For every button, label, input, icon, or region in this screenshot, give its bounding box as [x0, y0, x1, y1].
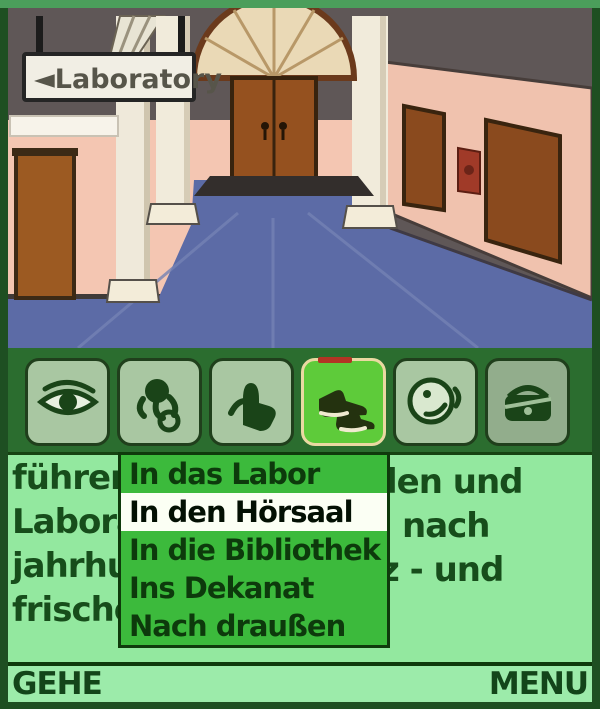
right-door-far[interactable]	[486, 120, 560, 262]
hallway-illustration: ◄Laboratory	[8, 8, 592, 348]
use-button[interactable]	[209, 358, 294, 446]
left-door[interactable]	[12, 148, 78, 298]
narration-fragment: len und	[386, 465, 523, 499]
verb-toolbar	[8, 348, 592, 452]
walking-shoes-icon	[311, 369, 377, 435]
door-mat	[194, 176, 374, 196]
grab-hand-icon	[127, 369, 193, 435]
inventory-bag-icon	[495, 369, 561, 435]
hold-hand-icon	[219, 369, 285, 435]
narration-fragment: nach	[402, 509, 490, 543]
wall-plate	[10, 116, 118, 136]
go-button[interactable]	[301, 358, 386, 446]
talking-face-icon	[403, 369, 469, 435]
menu-item-hoersaal[interactable]: In den Hörsaal	[121, 493, 387, 531]
menu-item-draussen[interactable]: Nach draußen	[121, 607, 387, 645]
menu-item-dekanat[interactable]: Ins Dekanat	[121, 569, 387, 607]
talk-button[interactable]	[393, 358, 478, 446]
narration-fragment: führen	[12, 461, 133, 495]
softkey-left-gehe[interactable]: GEHE	[12, 669, 102, 700]
go-destination-menu: In das Labor In den Hörsaal In die Bibli…	[118, 452, 390, 648]
double-door[interactable]	[232, 78, 316, 178]
right-door-near[interactable]	[404, 106, 444, 210]
fire-box[interactable]	[458, 148, 480, 194]
look-button[interactable]	[25, 358, 110, 446]
inventory-button[interactable]	[485, 358, 570, 446]
softkey-right-menu[interactable]: MENU	[489, 669, 588, 700]
screen-top-strip	[0, 0, 600, 8]
take-button[interactable]	[117, 358, 202, 446]
laboratory-sign-label: ◄Laboratory	[34, 64, 222, 95]
menu-item-bibliothek[interactable]: In die Bibliothek	[121, 531, 387, 569]
narration-fragment: z - und	[380, 553, 503, 587]
narration-fragment: jahrhu	[12, 549, 130, 583]
eye-icon	[35, 369, 101, 435]
softkey-bar: GEHE MENU	[8, 662, 592, 702]
scene-viewport[interactable]: ◄Laboratory	[8, 8, 592, 348]
menu-item-labor[interactable]: In das Labor	[121, 455, 387, 493]
